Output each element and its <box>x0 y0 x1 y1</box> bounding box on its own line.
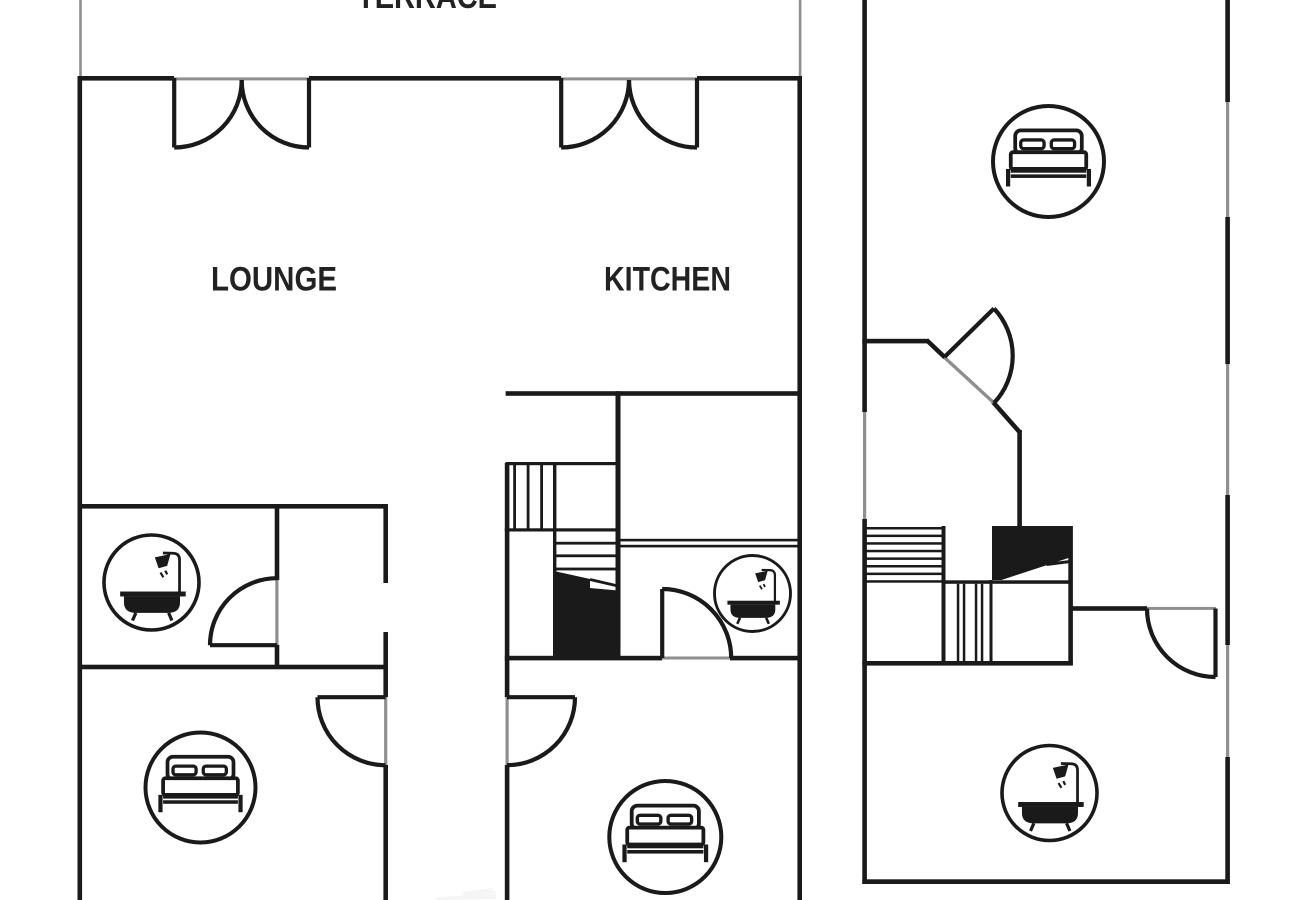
svg-text:TERRACE: TERRACE <box>357 0 497 16</box>
svg-text:KITCHEN: KITCHEN <box>604 261 731 299</box>
svg-text:LOUNGE: LOUNGE <box>211 261 337 299</box>
